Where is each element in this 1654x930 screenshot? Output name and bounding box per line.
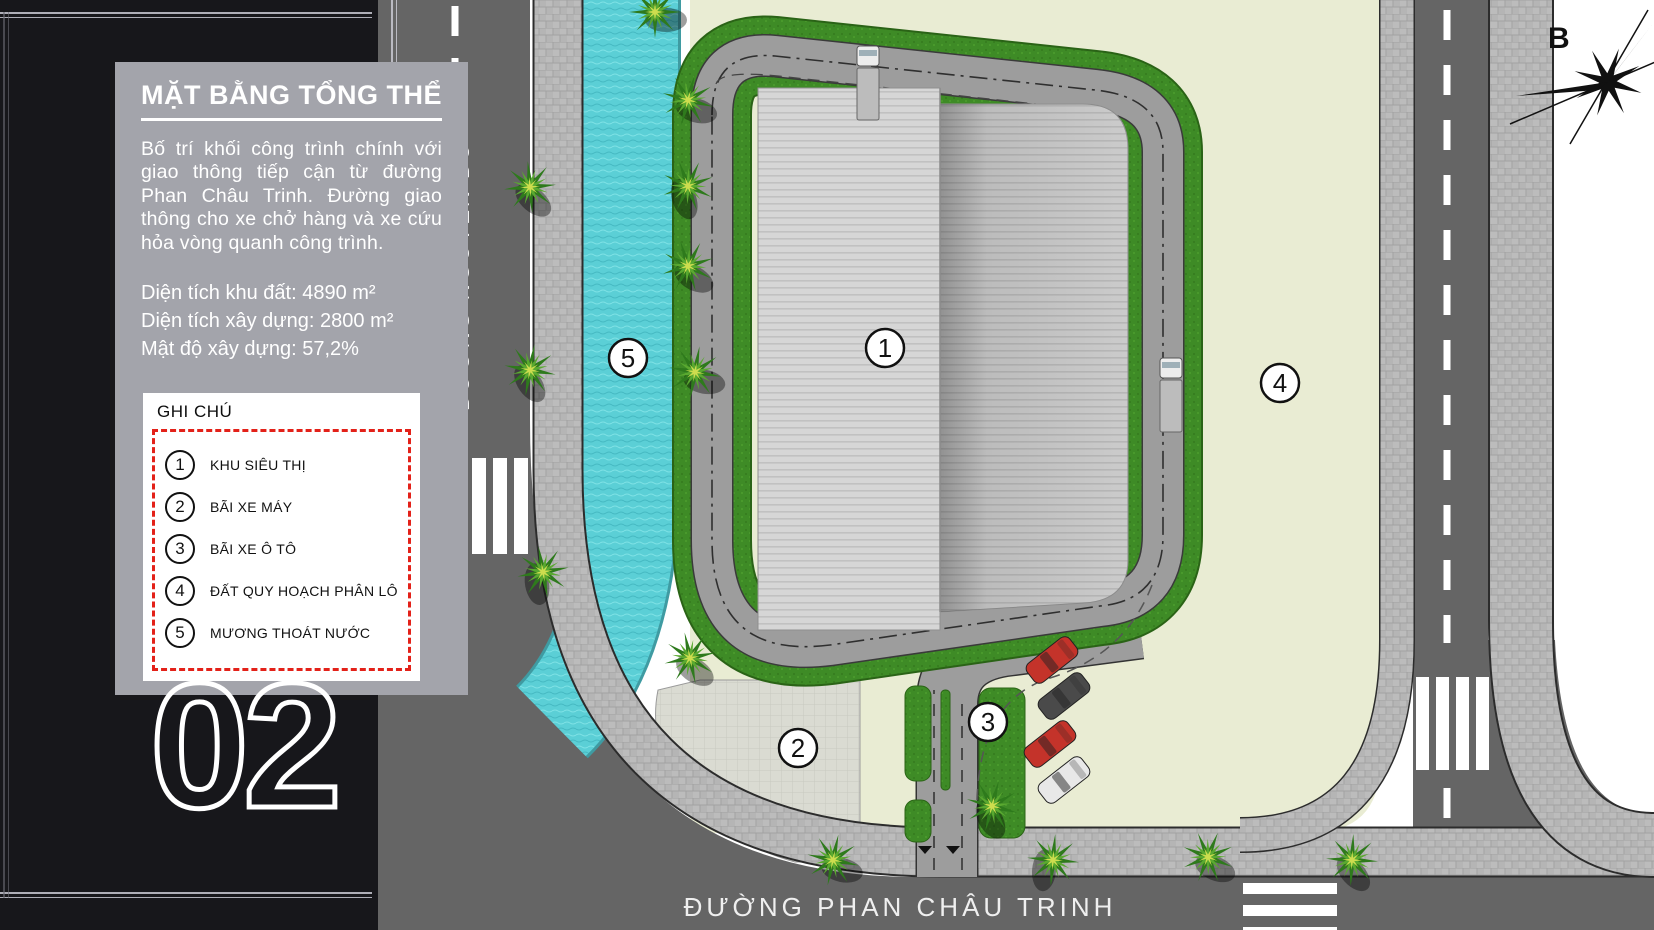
legend: GHI CHÚ 1 KHU SIÊU THỊ 2 BÃI XE MÁY 3 BÃ… (143, 393, 420, 681)
legend-item-label: BÃI XE Ô TÔ (210, 541, 296, 557)
presentation-board: ĐƯỜNG NGUYỄN DU ĐƯỜNG PHAN CHÂU TRINH 1 … (0, 0, 1654, 930)
white-block (1554, 0, 1654, 814)
truck-icon (857, 46, 879, 120)
svg-text:3: 3 (981, 707, 995, 737)
marker-1: 1 (866, 329, 904, 367)
legend-item-motorbike-parking: 2 BÃI XE MÁY (165, 492, 400, 522)
legend-item-label: ĐẤT QUY HOẠCH PHÂN LÔ (210, 583, 398, 599)
info-panel: MẶT BẰNG TỔNG THỂ Bố trí khối công trình… (115, 62, 468, 695)
frame-line (0, 892, 372, 894)
legend-item-label: MƯƠNG THOÁT NƯỚC (210, 625, 370, 641)
legend-item-label: BÃI XE MÁY (210, 499, 292, 515)
legend-title: GHI CHÚ (157, 402, 411, 422)
legend-item-car-parking: 3 BÃI XE Ô TÔ (165, 534, 400, 564)
legend-number-badge: 5 (165, 618, 195, 648)
svg-text:5: 5 (621, 343, 635, 373)
page-number: 02 (118, 655, 368, 855)
marker-2: 2 (779, 729, 817, 767)
compass-north-label: B (1548, 22, 1570, 55)
supermarket-building (758, 88, 1128, 630)
marker-3: 3 (969, 703, 1007, 741)
frame-line (0, 17, 372, 18)
legend-item-supermarket: 1 KHU SIÊU THỊ (165, 450, 400, 480)
frame-line (0, 12, 372, 14)
stat-built-area: Diện tích xây dựng: 2800 m² (141, 307, 442, 335)
legend-number-badge: 3 (165, 534, 195, 564)
project-stats: Diện tích khu đất: 4890 m² Diện tích xây… (141, 279, 442, 363)
legend-item-subdivision-land: 4 ĐẤT QUY HOẠCH PHÂN LÔ (165, 576, 400, 606)
page-title: MẶT BẰNG TỔNG THỂ (141, 80, 442, 121)
legend-number-badge: 4 (165, 576, 195, 606)
stat-density: Mật độ xây dựng: 57,2% (141, 335, 442, 363)
frame-line (0, 897, 372, 898)
crosswalk-left-road (472, 458, 528, 554)
legend-item-drainage: 5 MƯƠNG THOÁT NƯỚC (165, 618, 400, 648)
svg-text:4: 4 (1273, 368, 1287, 398)
project-description: Bố trí khối công trình chính với giao th… (141, 138, 442, 255)
svg-text:1: 1 (878, 333, 892, 363)
legend-number-badge: 2 (165, 492, 195, 522)
frame-line (3, 12, 5, 898)
road-label-phan-chau-trinh: ĐƯỜNG PHAN CHÂU TRINH (684, 892, 1117, 922)
marker-5: 5 (609, 339, 647, 377)
legend-number-badge: 1 (165, 450, 195, 480)
legend-item-label: KHU SIÊU THỊ (210, 457, 306, 473)
stat-land-area: Diện tích khu đất: 4890 m² (141, 279, 442, 307)
marker-4: 4 (1261, 364, 1299, 402)
frame-line (8, 12, 9, 898)
legend-box: 1 KHU SIÊU THỊ 2 BÃI XE MÁY 3 BÃI XE Ô T… (152, 429, 411, 671)
svg-text:2: 2 (791, 733, 805, 763)
page-number-text: 02 (150, 655, 336, 845)
truck-icon (1160, 358, 1182, 432)
